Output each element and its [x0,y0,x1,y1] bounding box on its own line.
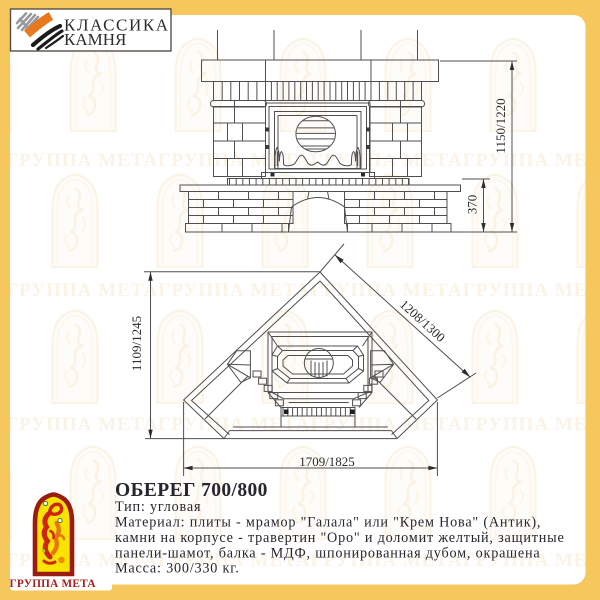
svg-text:камни на корпусе - травертин ": камни на корпусе - травертин "Оро" и дол… [115,530,565,546]
svg-text:ГРУППА МЕТАГРУППА МЕТАГРУППА М: ГРУППА МЕТАГРУППА МЕТАГРУППА МЕТАГРУППА … [6,150,600,171]
svg-text:ОБЕРЕГ 700/800: ОБЕРЕГ 700/800 [115,480,268,501]
svg-text:Тип: угловая: Тип: угловая [115,499,201,515]
svg-text:1150/1220: 1150/1220 [493,98,508,153]
svg-text:Масса: 300/330 кг.: Масса: 300/330 кг. [115,561,240,577]
svg-text:ГРУППА МЕТАГРУППА МЕТАГРУППА М: ГРУППА МЕТАГРУППА МЕТАГРУППА МЕТАГРУППА … [6,414,600,435]
svg-text:ГРУППА МЕТАГРУППА МЕТАГРУППА М: ГРУППА МЕТАГРУППА МЕТАГРУППА МЕТАГРУППА … [6,280,600,301]
svg-text:370: 370 [465,195,480,215]
svg-text:1709/1825: 1709/1825 [299,454,355,469]
svg-text:КАМНЯ: КАМНЯ [64,30,126,49]
svg-text:ГРУППА МЕТА: ГРУППА МЕТА [10,578,97,590]
svg-text:Материал: плиты - мрамор "Гала: Материал: плиты - мрамор "Галала" или "К… [115,515,541,531]
svg-text:панели-шамот, балка - МДФ, шпо: панели-шамот, балка - МДФ, шпонированная… [115,546,541,562]
svg-text:1109/1245: 1109/1245 [129,316,144,371]
